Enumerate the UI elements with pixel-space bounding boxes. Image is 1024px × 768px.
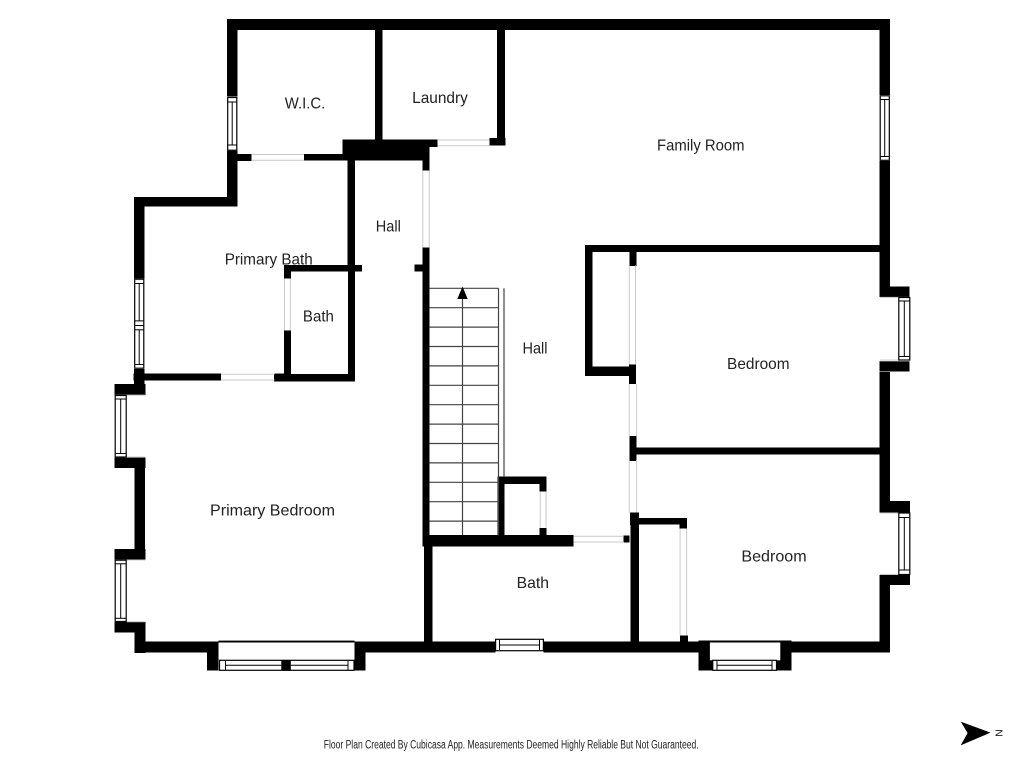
svg-text:Hall: Hall: [523, 341, 548, 358]
svg-text:Bedroom: Bedroom: [727, 356, 790, 373]
svg-text:Bedroom: Bedroom: [741, 549, 806, 566]
svg-text:Family Room: Family Room: [657, 138, 745, 155]
svg-text:Laundry: Laundry: [412, 90, 468, 107]
svg-text:Primary Bath: Primary Bath: [225, 252, 313, 269]
svg-text:Hall: Hall: [376, 219, 401, 236]
svg-text:Primary Bedroom: Primary Bedroom: [210, 503, 335, 520]
svg-text:Bath: Bath: [517, 575, 549, 592]
svg-text:W.I.C.: W.I.C.: [285, 96, 326, 113]
svg-text:Bath: Bath: [303, 309, 334, 326]
svg-text:Floor Plan Created By Cubicasa: Floor Plan Created By Cubicasa App. Meas…: [324, 740, 699, 752]
svg-text:N: N: [992, 729, 1004, 737]
